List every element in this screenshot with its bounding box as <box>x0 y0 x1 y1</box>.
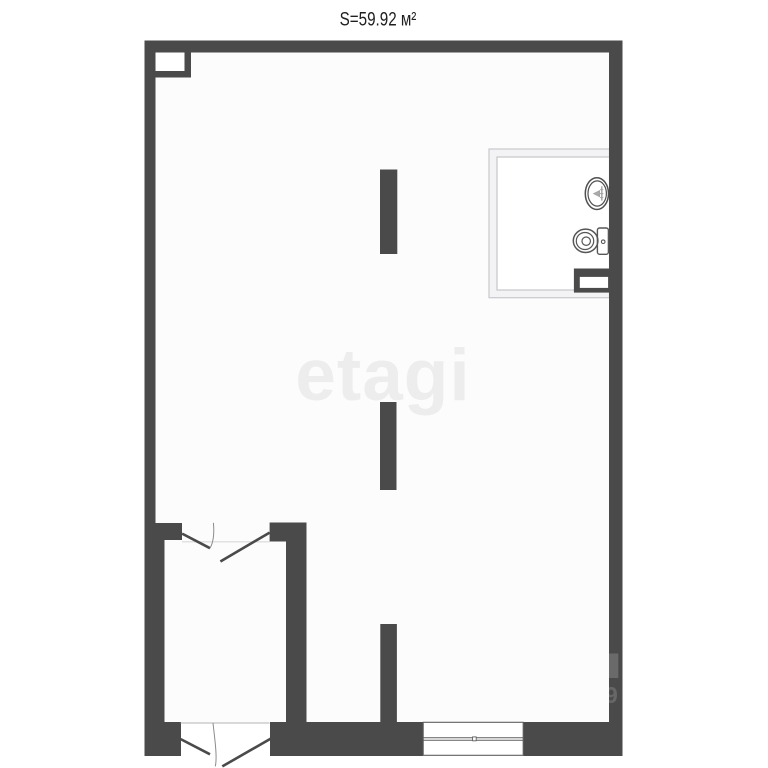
svg-text:S=59.92 м²: S=59.92 м² <box>340 8 417 30</box>
svg-text:9: 9 <box>605 682 618 708</box>
